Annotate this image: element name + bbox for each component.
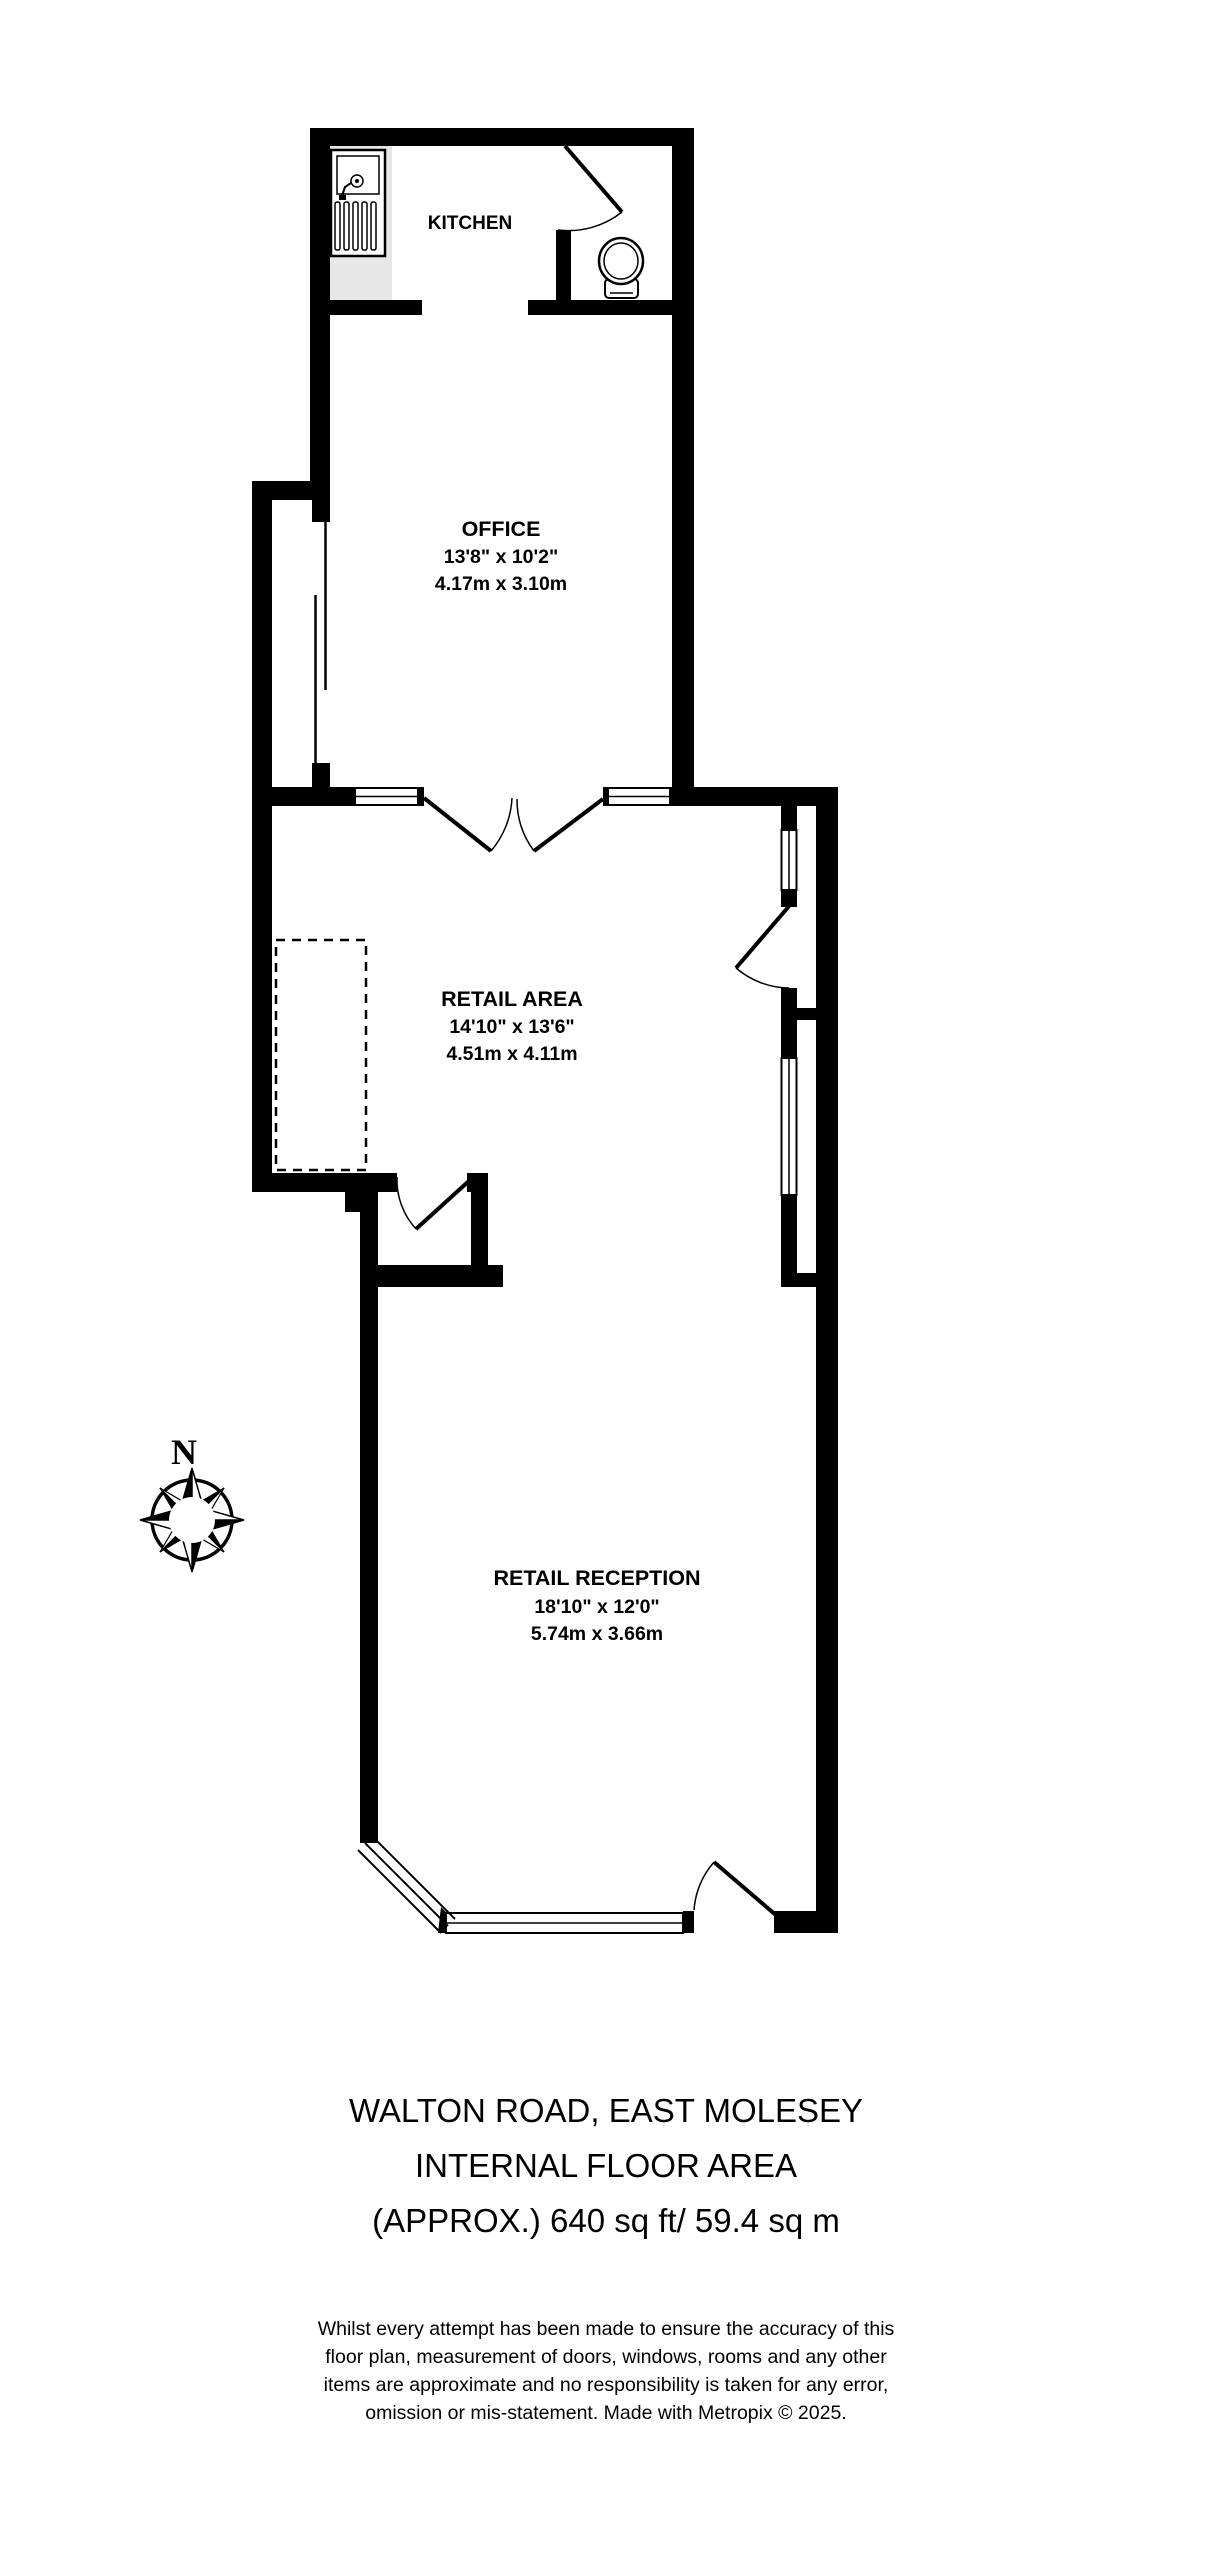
title-line-1: WALTON ROAD, EAST MOLESEY — [349, 2092, 863, 2129]
door-retail-side — [736, 905, 790, 988]
title-line-2: INTERNAL FLOOR AREA — [415, 2147, 797, 2184]
disclaimer-line-4: omission or mis-statement. Made with Met… — [365, 2402, 846, 2424]
room-label-office: OFFICE — [462, 517, 541, 541]
room-dim-retail-reception-metric: 5.74m x 3.66m — [531, 1623, 663, 1645]
door-reception-entrance — [694, 1862, 777, 1916]
floor-plan: N KITCHEN OFFICE 13'8" x 10'2" 4.17m x 3… — [0, 0, 1212, 2560]
wall — [816, 787, 838, 1933]
room-dim-office-imperial: 13'8" x 10'2" — [444, 546, 559, 568]
window-bay-diagonal — [358, 1836, 455, 1933]
wall — [672, 128, 694, 806]
door-wc — [558, 146, 622, 231]
compass-rose-icon: N — [140, 1432, 244, 1572]
room-dim-retail-area-metric: 4.51m x 4.11m — [446, 1043, 577, 1065]
disclaimer-line-2: floor plan, measurement of doors, window… — [325, 2346, 887, 2368]
room-dim-office-metric: 4.17m x 3.10m — [435, 573, 567, 595]
wall — [528, 300, 690, 315]
compass-north-label: N — [171, 1432, 197, 1472]
dashed-feature-outline — [276, 940, 366, 1170]
window — [782, 830, 797, 890]
wall — [670, 787, 838, 806]
window-shopfront — [446, 1913, 683, 1933]
disclaimer: Whilst every attempt has been made to en… — [318, 2318, 895, 2424]
disclaimer-line-3: items are approximate and no responsibil… — [324, 2374, 889, 2396]
wall — [781, 1273, 838, 1287]
wall — [252, 481, 272, 1192]
disclaimer-line-1: Whilst every attempt has been made to en… — [318, 2318, 895, 2340]
room-dim-retail-area-imperial: 14'10" x 13'6" — [449, 1016, 574, 1038]
toilet-icon — [599, 238, 643, 298]
sink-icon — [331, 150, 385, 256]
wall-window-stub — [312, 500, 330, 522]
room-label-retail-area: RETAIL AREA — [441, 987, 583, 1011]
wall — [683, 1911, 694, 1933]
door-double-office — [424, 798, 603, 851]
title-line-3: (APPROX.) 640 sq ft/ 59.4 sq m — [372, 2202, 840, 2239]
window — [355, 788, 418, 805]
window — [608, 788, 670, 805]
wall — [360, 1192, 378, 1843]
wall — [781, 806, 797, 830]
windows — [316, 522, 797, 1933]
wall — [378, 1265, 503, 1287]
wall — [797, 1008, 818, 1020]
wall — [310, 128, 690, 146]
room-label-retail-reception: RETAIL RECEPTION — [493, 1566, 700, 1590]
window — [782, 1058, 797, 1195]
wall — [252, 787, 355, 806]
plan-title: WALTON ROAD, EAST MOLESEY INTERNAL FLOOR… — [349, 2092, 863, 2239]
floorplan-page: N KITCHEN OFFICE 13'8" x 10'2" 4.17m x 3… — [0, 0, 1212, 2560]
room-dim-retail-reception-imperial: 18'10" x 12'0" — [534, 1596, 659, 1618]
wall — [310, 300, 422, 315]
wall-wc-partition — [556, 230, 571, 302]
wall — [774, 1911, 838, 1933]
room-label-kitchen: KITCHEN — [428, 213, 512, 234]
wall — [252, 1173, 397, 1192]
door-cupboard — [397, 1177, 470, 1229]
wall — [781, 988, 797, 1058]
